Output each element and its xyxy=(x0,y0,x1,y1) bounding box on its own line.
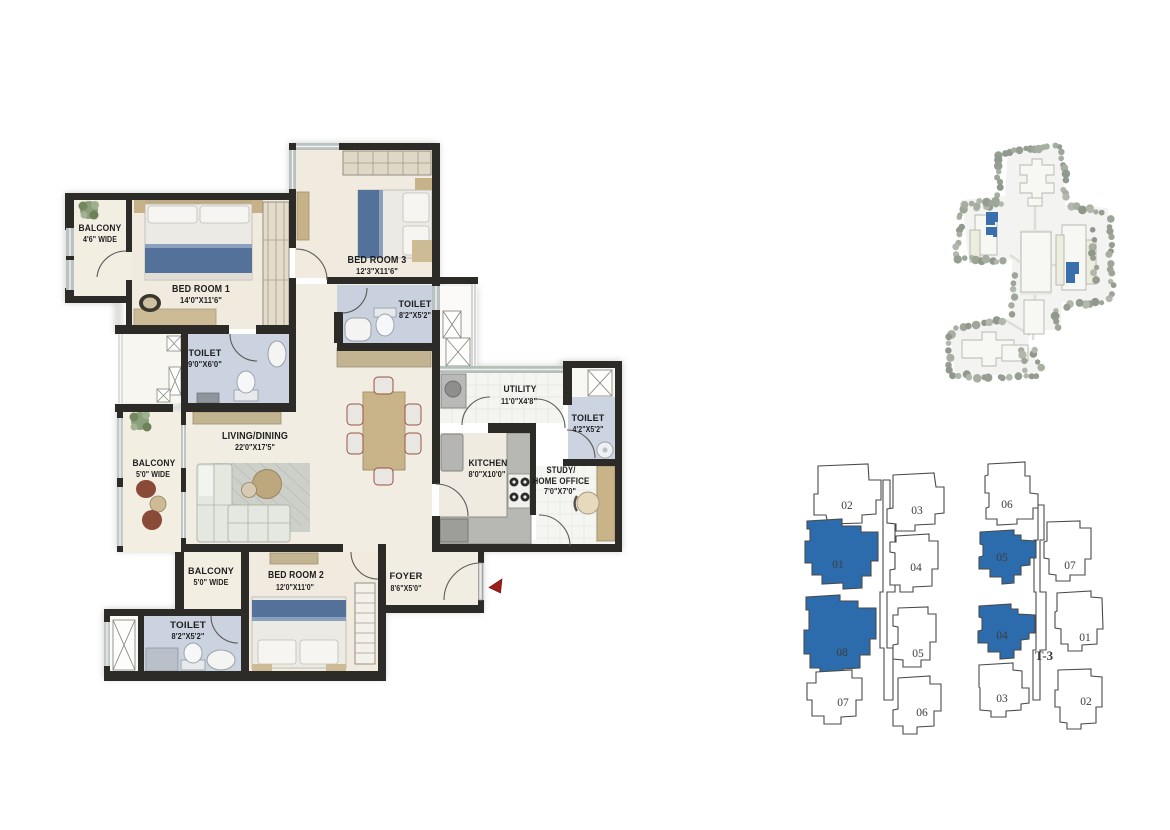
svg-text:22'0"X17'5": 22'0"X17'5" xyxy=(235,443,275,452)
svg-text:BED ROOM 2: BED ROOM 2 xyxy=(268,569,324,581)
svg-text:8'2"X5'2": 8'2"X5'2" xyxy=(399,311,431,320)
svg-text:5'0" WIDE: 5'0" WIDE xyxy=(194,578,230,587)
svg-text:04: 04 xyxy=(996,630,1008,642)
svg-text:12'0"X11'0": 12'0"X11'0" xyxy=(276,583,314,592)
svg-text:4'2"X5'2": 4'2"X5'2" xyxy=(573,425,604,434)
svg-text:STUDY/: STUDY/ xyxy=(547,465,576,476)
svg-text:05: 05 xyxy=(912,648,924,660)
svg-text:BED ROOM 3: BED ROOM 3 xyxy=(348,254,407,266)
svg-text:8'2"X5'2": 8'2"X5'2" xyxy=(172,632,205,641)
svg-text:01: 01 xyxy=(1079,632,1091,644)
svg-text:TOILET: TOILET xyxy=(189,348,222,359)
svg-text:KITCHEN: KITCHEN xyxy=(469,458,508,469)
svg-text:07: 07 xyxy=(837,697,849,709)
svg-text:5'0" WIDE: 5'0" WIDE xyxy=(136,470,170,479)
svg-text:LIVING/DINING: LIVING/DINING xyxy=(222,430,288,442)
svg-text:14'0"X11'6": 14'0"X11'6" xyxy=(180,296,222,305)
svg-text:03: 03 xyxy=(996,693,1008,705)
svg-text:TOILET: TOILET xyxy=(572,413,605,424)
svg-text:03: 03 xyxy=(911,505,923,517)
svg-text:01: 01 xyxy=(832,559,844,571)
svg-text:BALCONY: BALCONY xyxy=(133,458,176,469)
svg-text:12'3"X11'6": 12'3"X11'6" xyxy=(356,267,398,276)
svg-text:05: 05 xyxy=(996,552,1008,564)
svg-text:02: 02 xyxy=(1080,696,1092,708)
svg-text:08: 08 xyxy=(836,647,848,659)
svg-text:07: 07 xyxy=(1064,560,1076,572)
svg-text:06: 06 xyxy=(1001,499,1013,511)
svg-text:04: 04 xyxy=(910,562,922,574)
svg-text:UTILITY: UTILITY xyxy=(504,384,537,395)
svg-text:BALCONY: BALCONY xyxy=(188,566,234,577)
svg-text:HOME OFFICE: HOME OFFICE xyxy=(533,476,590,487)
svg-text:9'0"X6'0": 9'0"X6'0" xyxy=(188,360,222,369)
svg-text:BALCONY: BALCONY xyxy=(79,223,122,234)
svg-text:7'0"X7'0": 7'0"X7'0" xyxy=(544,487,576,496)
svg-text:11'0"X4'8": 11'0"X4'8" xyxy=(501,397,537,406)
svg-text:02: 02 xyxy=(841,500,853,512)
svg-text:FOYER: FOYER xyxy=(390,571,423,582)
svg-text:8'0"X10'0": 8'0"X10'0" xyxy=(469,470,506,479)
svg-text:TOILET: TOILET xyxy=(170,620,206,631)
svg-text:TOILET: TOILET xyxy=(399,299,432,310)
svg-text:8'6"X5'0": 8'6"X5'0" xyxy=(391,584,422,593)
svg-text:06: 06 xyxy=(916,707,928,719)
svg-text:T-3: T-3 xyxy=(1035,648,1054,663)
svg-text:4'6" WIDE: 4'6" WIDE xyxy=(83,235,117,244)
svg-text:BED ROOM 1: BED ROOM 1 xyxy=(172,283,230,295)
